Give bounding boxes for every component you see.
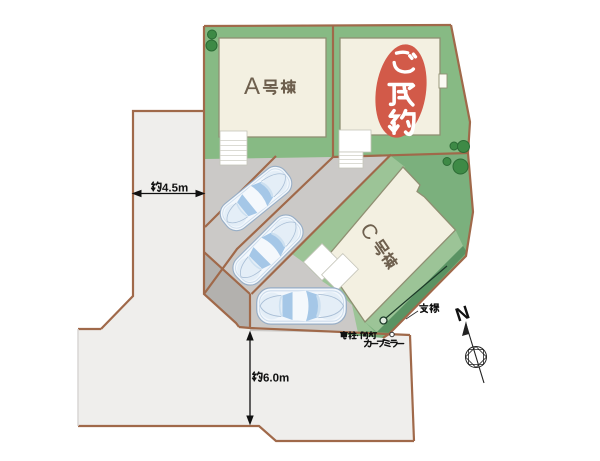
svg-text:A: A: [244, 73, 260, 100]
svg-text:6.0m: 6.0m: [263, 373, 289, 385]
svg-text:4.5m: 4.5m: [162, 183, 188, 195]
